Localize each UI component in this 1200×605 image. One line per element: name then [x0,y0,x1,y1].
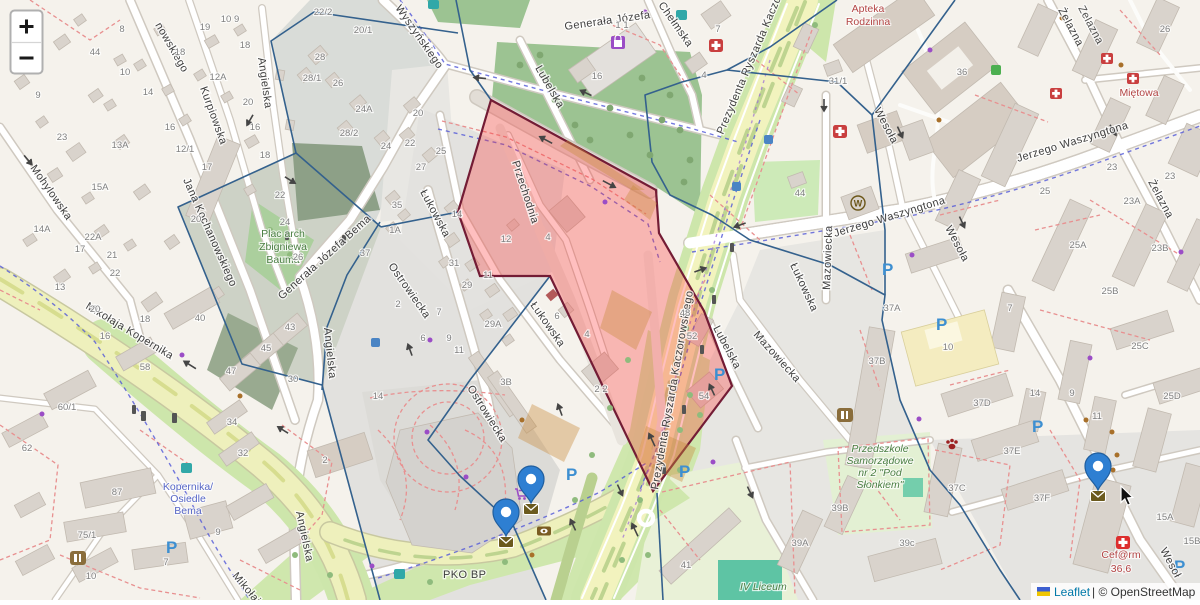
svg-text:37E: 37E [1004,446,1021,457]
svg-text:44: 44 [795,188,806,199]
svg-text:P: P [679,462,690,481]
svg-text:43: 43 [285,322,296,333]
svg-text:2: 2 [395,299,400,310]
svg-text:18: 18 [175,47,186,58]
svg-text:23A: 23A [1124,196,1142,207]
svg-text:IV Liceum: IV Liceum [740,581,787,593]
svg-text:W: W [854,199,863,209]
svg-text:P: P [882,260,893,279]
svg-text:12/1: 12/1 [176,144,195,155]
svg-text:45: 45 [261,343,272,354]
svg-text:2: 2 [322,455,327,466]
svg-text:35: 35 [392,200,403,211]
svg-text:54: 54 [699,391,710,402]
svg-text:25: 25 [1040,186,1051,197]
svg-text:27: 27 [416,162,427,173]
svg-text:11: 11 [1092,411,1102,422]
svg-text:Samorządowe: Samorządowe [846,455,913,467]
svg-text:7: 7 [163,557,168,568]
svg-text:60/1: 60/1 [58,402,77,413]
svg-text:47: 47 [226,366,237,377]
svg-text:nr 2 "Pod: nr 2 "Pod [858,467,903,479]
svg-text:20: 20 [243,97,254,108]
svg-text:15A: 15A [92,182,110,193]
svg-text:34: 34 [227,417,238,428]
svg-text:Bema: Bema [174,505,202,517]
svg-text:25C: 25C [1131,341,1149,352]
svg-text:3B: 3B [500,377,512,388]
svg-text:4: 4 [545,232,550,243]
svg-text:26: 26 [1160,24,1171,35]
svg-text:14A: 14A [34,224,52,235]
svg-text:Apteka: Apteka [852,3,885,15]
svg-text:Rodzinna: Rodzinna [846,16,891,28]
svg-text:25D: 25D [1163,391,1181,402]
svg-text:Słonkiem": Słonkiem" [857,479,905,491]
svg-text:22/2: 22/2 [314,7,333,18]
svg-text:37A: 37A [884,303,902,314]
svg-text:26: 26 [293,252,304,263]
svg-text:29A: 29A [485,319,503,330]
svg-text:P: P [1032,417,1043,436]
svg-text:22: 22 [275,190,286,201]
svg-text:15B: 15B [1184,536,1200,547]
svg-text:39A: 39A [792,538,810,549]
svg-text:10: 10 [943,342,954,353]
svg-text:17: 17 [75,244,86,255]
svg-text:14: 14 [1030,388,1041,399]
svg-text:24A: 24A [356,104,374,115]
svg-text:24: 24 [381,141,392,152]
svg-text:Leaflet: Leaflet [1054,585,1091,599]
svg-text:16: 16 [250,122,261,133]
svg-text:31: 31 [449,258,460,269]
svg-text:PKO BP: PKO BP [443,569,486,581]
svg-text:37: 37 [360,248,371,259]
svg-text:10: 10 [120,67,131,78]
svg-text:9: 9 [35,90,40,101]
svg-text:10 9: 10 9 [221,14,240,25]
svg-text:14: 14 [452,209,463,220]
svg-text:25A: 25A [1070,240,1088,251]
svg-text:15A: 15A [1157,512,1175,523]
svg-text:19: 19 [200,22,211,33]
svg-text:20: 20 [90,304,101,315]
svg-text:P: P [936,315,947,334]
svg-text:39c: 39c [899,538,915,549]
svg-text:16: 16 [592,71,603,82]
svg-text:7: 7 [1007,303,1012,314]
svg-text:39B: 39B [832,503,849,514]
svg-text:9: 9 [215,527,220,538]
svg-text:13A: 13A [112,140,130,151]
svg-text:16: 16 [100,331,111,342]
svg-text:37C: 37C [948,483,966,494]
svg-text:1 1: 1 1 [615,20,628,31]
svg-text:52: 52 [687,331,698,342]
svg-text:37B: 37B [869,356,886,367]
svg-text:41: 41 [681,560,692,571]
svg-text:9: 9 [1069,388,1074,399]
svg-text:18: 18 [140,314,151,325]
svg-text:26: 26 [333,78,344,89]
svg-text:P: P [566,465,577,484]
svg-text:23: 23 [1107,162,1118,173]
svg-text:75/1: 75/1 [78,530,97,541]
svg-text:17: 17 [202,162,213,173]
svg-text:Miętowa: Miętowa [1119,87,1158,99]
svg-text:14: 14 [373,391,384,402]
svg-text:21: 21 [107,250,118,261]
svg-text:20: 20 [191,214,202,225]
svg-text:6: 6 [420,333,425,344]
svg-text:7: 7 [436,307,441,318]
svg-text:62: 62 [22,443,33,454]
svg-text:| © OpenStreetMap: | © OpenStreetMap [1092,585,1196,599]
svg-text:58: 58 [140,362,151,373]
svg-text:11: 11 [454,345,464,356]
svg-text:23B: 23B [1152,243,1169,254]
svg-text:4: 4 [701,70,706,81]
svg-text:1A: 1A [389,225,401,236]
svg-text:25B: 25B [1102,286,1119,297]
svg-text:7: 7 [715,24,720,35]
svg-text:11: 11 [483,270,493,281]
svg-text:22: 22 [405,138,416,149]
svg-text:22: 22 [110,268,121,279]
svg-text:23: 23 [1165,171,1176,182]
svg-text:8: 8 [119,24,124,35]
svg-text:16: 16 [165,122,176,133]
svg-text:30: 30 [288,374,299,385]
svg-text:2 2: 2 2 [594,384,607,395]
svg-text:P: P [714,365,725,384]
svg-text:28/1: 28/1 [303,73,322,84]
svg-text:Mazowiecka: Mazowiecka [821,225,835,290]
svg-text:31/1: 31/1 [829,76,848,87]
svg-text:18: 18 [260,150,271,161]
svg-text:9: 9 [446,333,451,344]
svg-text:28/2: 28/2 [340,128,359,139]
svg-text:P: P [166,538,177,557]
svg-text:40: 40 [195,313,206,324]
svg-text:Osiedle: Osiedle [170,493,206,505]
svg-text:37D: 37D [973,398,991,409]
svg-text:36: 36 [957,67,968,78]
svg-text:23: 23 [57,132,68,143]
svg-text:22A: 22A [85,232,103,243]
svg-text:37F: 37F [1034,493,1051,504]
svg-text:4: 4 [584,329,589,340]
svg-text:6: 6 [554,311,559,322]
svg-text:Kopernika/: Kopernika/ [163,481,213,493]
svg-text:48: 48 [680,308,691,319]
svg-text:10: 10 [86,571,97,582]
svg-text:Plac arch: Plac arch [261,228,305,240]
svg-text:24: 24 [280,217,291,228]
svg-text:Cef@rm: Cef@rm [1101,549,1140,561]
svg-text:14: 14 [143,87,154,98]
svg-text:12: 12 [501,234,512,245]
svg-text:87: 87 [112,487,123,498]
svg-text:20/1: 20/1 [354,25,373,36]
svg-text:20: 20 [413,108,424,119]
svg-text:32: 32 [238,448,249,459]
svg-text:25: 25 [436,146,447,157]
svg-text:29: 29 [462,280,473,291]
svg-text:44: 44 [90,47,101,58]
svg-text:13: 13 [55,282,66,293]
svg-text:Przedszkole: Przedszkole [851,443,908,455]
svg-text:36,6: 36,6 [1111,563,1132,575]
svg-text:28: 28 [315,52,326,63]
svg-text:18: 18 [240,40,251,51]
svg-text:12A: 12A [210,72,228,83]
